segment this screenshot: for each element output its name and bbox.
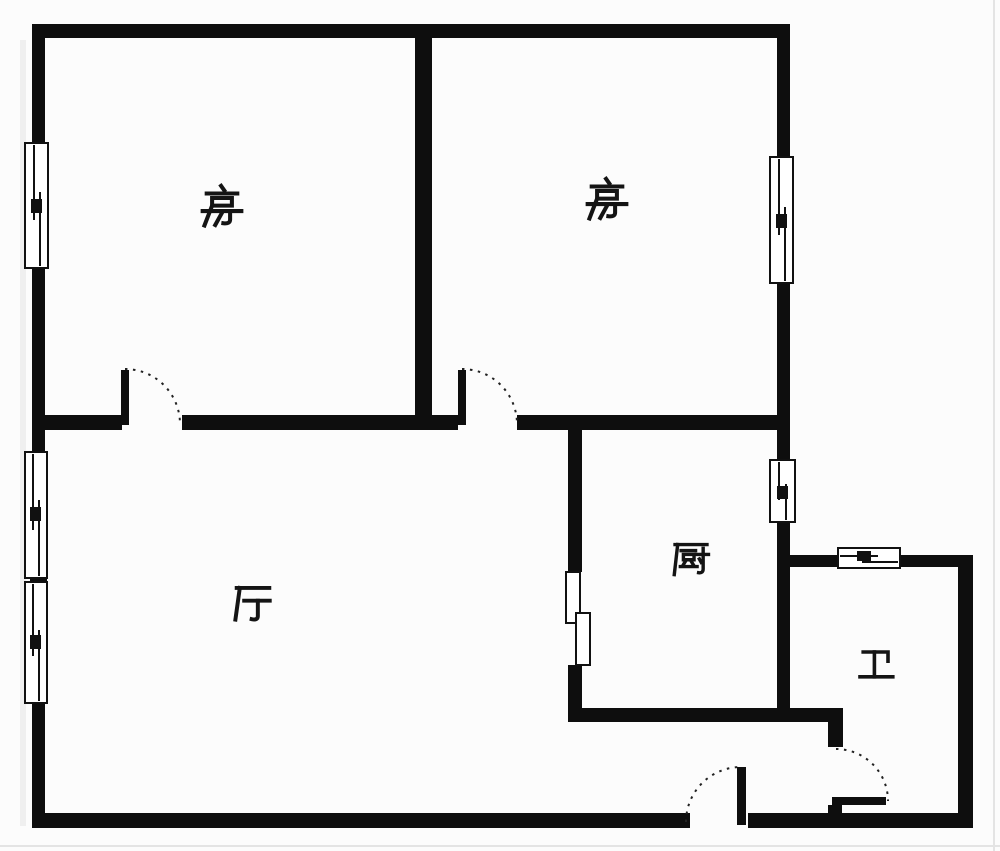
bottom-edge-guide-line [0, 845, 1000, 847]
room-label-bathroom [860, 652, 893, 677]
wall-bottom-right [748, 813, 973, 828]
door-swing-arc [686, 767, 741, 822]
edge-guides [0, 0, 1000, 851]
room-label-bedroom-1 [203, 186, 242, 226]
door-bathroom [828, 749, 888, 817]
window-bathroom-top [838, 548, 900, 568]
window-living-left-upper [25, 452, 47, 578]
window-bedroom2-right [770, 157, 793, 283]
wall-mid-horizontal-2 [182, 415, 458, 430]
wall-top [33, 24, 790, 38]
room-label-living-room [235, 588, 269, 620]
doors [121, 369, 888, 825]
window-living-left-lower [25, 582, 47, 703]
right-edge-guide-line [993, 0, 995, 851]
room-label-kitchen [674, 545, 708, 575]
wall-mid-horizontal-1 [33, 415, 122, 430]
door-swing-arc [125, 369, 180, 424]
window-kitchen-right [770, 460, 795, 522]
wall-bathroom-door-stub [828, 722, 843, 747]
door-bedroom-1 [121, 369, 180, 425]
wall-bedroom-divider [415, 38, 432, 430]
wall-kitchen-bottom [568, 708, 843, 722]
wall-right-middle [777, 283, 790, 462]
wall-kitchen-left-upper [568, 417, 582, 572]
window-bedroom1-left [25, 143, 48, 268]
wall-right-lower [777, 522, 790, 722]
wall-left-lower [32, 703, 45, 828]
door-swing-arc [462, 369, 517, 424]
door-bedroom-2 [458, 369, 517, 425]
wall-bathroom-right [958, 555, 973, 828]
door-entry [686, 767, 746, 825]
wall-right-upper [777, 24, 790, 157]
walls [30, 24, 973, 828]
wall-bathroom-top-left [790, 555, 838, 567]
room-label-bedroom-2 [588, 179, 627, 219]
door-swing-arc [836, 749, 888, 801]
floor-plan-drawing [0, 0, 1000, 851]
wall-left-upper [32, 24, 45, 143]
wall-mid-horizontal-3 [517, 415, 790, 430]
wall-bottom-left [33, 813, 690, 828]
floor-plan-canvas: 房 房 厅 厨 卫 [0, 0, 1000, 851]
sliding-door-kitchen [566, 572, 590, 665]
